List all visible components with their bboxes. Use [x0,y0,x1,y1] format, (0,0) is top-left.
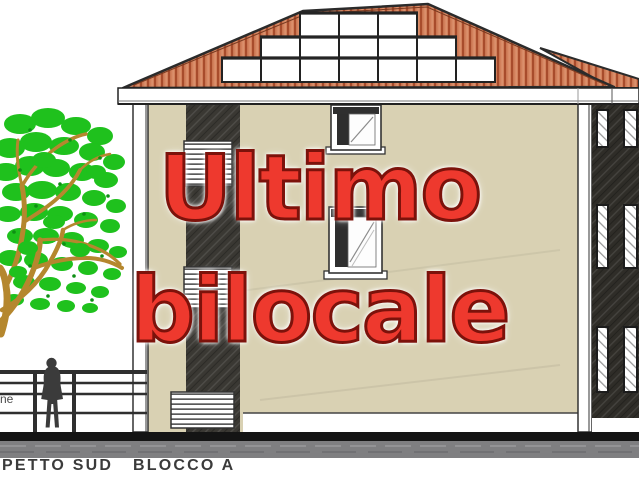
drawing-caption: PETTO SUD BLOCCO A [2,457,235,475]
person-silhouette [41,358,63,428]
cutoff-edge-label: ne [0,392,13,406]
fence [0,370,147,432]
overlay-text-line2: bilocale [0,266,639,356]
roof [118,4,639,104]
ground-line [0,432,639,441]
overlay-text-line1: Ultimo [0,144,639,234]
ground [0,432,639,458]
roof-fascia [118,88,639,104]
ground-strip [0,441,639,458]
louver-vent-base [171,392,234,428]
elevation-drawing-image: Ultimo bilocale PETTO SUD BLOCCO A ne [0,0,639,480]
